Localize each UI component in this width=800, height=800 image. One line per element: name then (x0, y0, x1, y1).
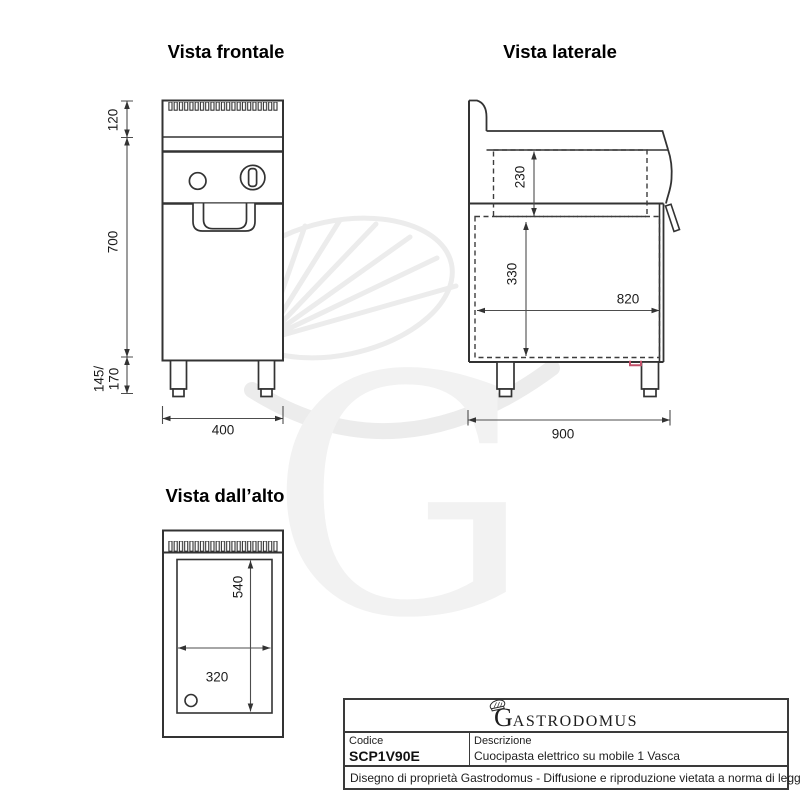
top-view (163, 531, 283, 738)
dim-label-400: 400 (212, 424, 235, 439)
dim-label-330: 330 (506, 263, 521, 286)
leg (171, 361, 187, 390)
front-view (163, 101, 284, 397)
watermark-letter: G (268, 306, 532, 690)
top-view-title: Vista dall’alto (166, 485, 285, 507)
door-handle-side (666, 204, 680, 231)
gastrodomus-logo: GASTRODOMUS (345, 700, 787, 731)
copyright-note: Disegno di proprietà Gastrodomus - Diffu… (345, 765, 787, 789)
drain-hole (185, 695, 197, 707)
dim-label-820: 820 (617, 293, 640, 308)
dim-label-900: 900 (552, 428, 575, 443)
dim-label-230: 230 (514, 166, 529, 189)
title-block: GASTRODOMUS Codice SCP1V90E Descrizione … (343, 698, 789, 790)
dim-label-540: 540 (232, 576, 247, 599)
dim-label-145-170: 145/ 170 (92, 366, 121, 392)
side-view (469, 101, 680, 397)
drawing-sheet: G (0, 0, 800, 800)
dim-label-320: 320 (206, 671, 229, 686)
descrizione-cell: Descrizione Cuocipasta elettrico su mobi… (470, 733, 684, 765)
codice-value: SCP1V90E (349, 748, 465, 764)
leg (642, 362, 659, 389)
codice-label: Codice (349, 735, 465, 747)
leg (259, 361, 275, 390)
chef-hat-logo-icon (487, 699, 509, 715)
dim-label-120: 120 (107, 109, 122, 132)
logo-text: ASTRODOMUS (513, 714, 638, 730)
descrizione-value: Cuocipasta elettrico su mobile 1 Vasca (474, 749, 680, 763)
indicator-light (189, 173, 206, 190)
front-view-title: Vista frontale (168, 41, 285, 63)
vent-grille-top (168, 541, 278, 553)
codice-cell: Codice SCP1V90E (345, 733, 470, 765)
leg (497, 362, 514, 389)
vent-grille-front (168, 102, 278, 112)
descrizione-label: Descrizione (474, 735, 680, 747)
dim-label-700: 700 (107, 231, 122, 254)
side-view-title: Vista laterale (503, 41, 617, 63)
